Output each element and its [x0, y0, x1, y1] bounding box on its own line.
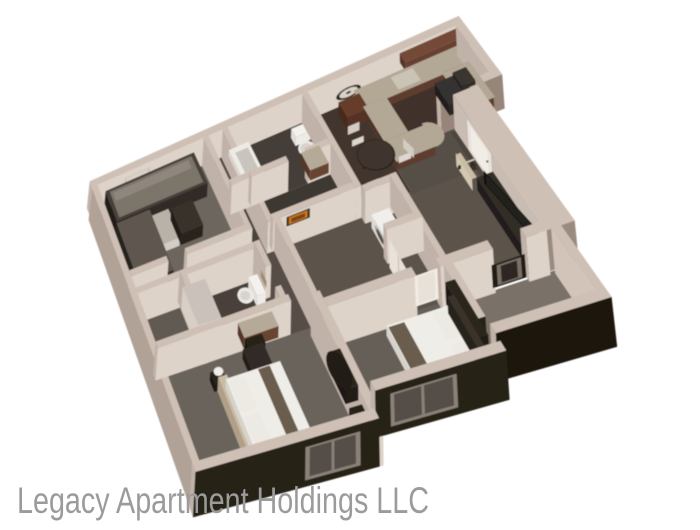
svg-text:Legacy Apartment Holdings LLC: Legacy Apartment Holdings LLC — [17, 480, 429, 521]
